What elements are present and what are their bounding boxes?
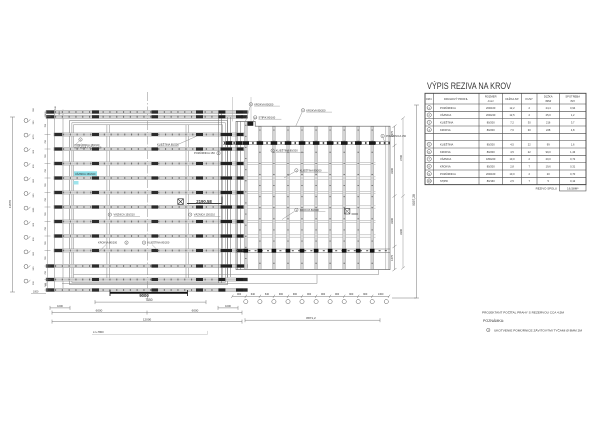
svg-text:1,2: 1,2 [571, 113, 575, 117]
svg-text:900: 900 [335, 293, 340, 296]
svg-text:1000: 1000 [33, 290, 39, 293]
svg-text:3300: 3300 [390, 218, 394, 224]
svg-text:4,8: 4,8 [571, 128, 575, 132]
svg-text:8871,2: 8871,2 [306, 316, 316, 320]
svg-text:4: 4 [126, 243, 127, 245]
svg-text:VÄZNICA 150/100: VÄZNICA 150/100 [75, 173, 96, 176]
svg-text:900: 900 [279, 293, 284, 296]
svg-text:6: 6 [296, 210, 297, 212]
svg-text:180/220: 180/220 [486, 157, 496, 161]
svg-text:25,0: 25,0 [546, 113, 552, 117]
svg-text:12,5: 12,5 [509, 113, 515, 117]
svg-text:1000: 1000 [225, 304, 231, 308]
svg-text:1070: 1070 [33, 134, 35, 140]
svg-text:1,43: 1,43 [570, 150, 576, 154]
svg-text:6000: 6000 [96, 308, 103, 312]
svg-text:5: 5 [218, 153, 219, 155]
svg-text:KOTVENÁ TYČOU M16: KOTVENÁ TYČOU M16 [75, 147, 103, 150]
svg-text:900: 900 [293, 293, 298, 296]
svg-text:7150: 7150 [145, 298, 152, 302]
svg-text:200/160: 200/160 [486, 106, 496, 110]
svg-text:ROZMER: ROZMER [485, 95, 497, 99]
svg-text:9: 9 [382, 136, 383, 138]
svg-text:KROKVA: KROKVA [440, 164, 451, 168]
svg-text:6000: 6000 [192, 308, 199, 312]
svg-text:20,0: 20,0 [546, 157, 552, 161]
svg-text:REZIVO SPOLU: REZIVO SPOLU [536, 186, 557, 190]
svg-text:80/200: 80/200 [487, 142, 495, 146]
svg-text:1: 1 [488, 330, 489, 332]
svg-text:KUSY: KUSY [526, 97, 534, 101]
svg-text:STļPIK: STļPIK [440, 179, 448, 183]
svg-text:VÄZNICA: VÄZNICA [440, 157, 452, 161]
svg-text:KROKVA 80/200: KROKVA 80/200 [300, 208, 320, 212]
svg-text:/MM/: /MM/ [545, 99, 551, 103]
svg-text:5: 5 [80, 139, 81, 141]
svg-text:1100: 1100 [33, 207, 35, 212]
svg-text:640: 640 [265, 293, 270, 296]
svg-text:80/200: 80/200 [487, 128, 495, 132]
svg-text:1,6: 1,6 [571, 142, 575, 146]
svg-text:VÄZNICA 150/210: VÄZNICA 150/210 [114, 213, 136, 217]
svg-text:900: 900 [321, 293, 326, 296]
svg-text:2,8: 2,8 [510, 164, 514, 168]
svg-text:228: 228 [546, 128, 551, 132]
svg-text:12,2: 12,2 [509, 106, 515, 110]
svg-text:0,72: 0,72 [570, 157, 576, 161]
svg-text:216: 216 [546, 120, 551, 124]
svg-text:900: 900 [349, 293, 354, 296]
svg-text:3300: 3300 [390, 168, 394, 174]
svg-text:1000: 1000 [57, 304, 63, 308]
svg-text:3: 3 [143, 243, 144, 245]
svg-text:4,5: 4,5 [510, 150, 514, 154]
svg-text:DRUHOVÝ PROFIL: DRUHOVÝ PROFIL [444, 97, 468, 101]
svg-text:10,0: 10,0 [509, 172, 515, 176]
svg-text:6: 6 [250, 104, 251, 106]
svg-text:80/200: 80/200 [487, 120, 495, 124]
svg-text:10: 10 [254, 117, 256, 119]
svg-text:VÄZNICA 150/210: VÄZNICA 150/210 [194, 213, 216, 217]
svg-text:3700: 3700 [399, 155, 403, 161]
svg-text:1475: 1475 [390, 131, 394, 137]
svg-text:SPOTREBA: SPOTREBA [565, 95, 580, 99]
svg-text:9097,28: 9097,28 [412, 194, 416, 206]
svg-text:7,6: 7,6 [510, 128, 514, 132]
svg-text:KROKVA 80/200: KROKVA 80/200 [306, 108, 326, 112]
svg-text:POZNÁMKA:: POZNÁMKA: [483, 319, 504, 323]
svg-text:KROKVA 80/200: KROKVA 80/200 [98, 240, 118, 244]
svg-text:7: 7 [109, 215, 110, 217]
svg-text:80/200: 80/200 [487, 164, 495, 168]
svg-text:L=+7800: L=+7800 [93, 330, 104, 334]
svg-text:1300: 1300 [378, 293, 384, 296]
svg-text:16,58M³: 16,58M³ [567, 187, 578, 191]
svg-text:0,94: 0,94 [570, 106, 576, 110]
svg-text:200/160: 200/160 [486, 172, 496, 176]
svg-text:10,0: 10,0 [509, 157, 515, 161]
svg-text:99,0: 99,0 [546, 150, 552, 154]
svg-text:0,70: 0,70 [570, 172, 576, 176]
svg-text:POMÚRNICA 150: POMÚRNICA 150 [386, 135, 407, 138]
svg-text:200/240: 200/240 [486, 113, 496, 117]
svg-text:KROKVA: KROKVA [440, 150, 451, 154]
svg-text:4,5: 4,5 [510, 142, 514, 146]
svg-text:0,31: 0,31 [570, 164, 576, 168]
svg-text:6: 6 [302, 110, 303, 112]
svg-text:UKOTVENIE POMÚRNICE ZÁVITOVÝMI: UKOTVENIE POMÚRNICE ZÁVITOVÝMI TYČAMI Ø … [494, 327, 583, 332]
svg-text:3,7: 3,7 [571, 120, 575, 124]
svg-text:12000: 12000 [143, 318, 152, 322]
svg-text:7: 7 [190, 215, 191, 217]
svg-text:2,5: 2,5 [510, 179, 514, 183]
svg-text:900: 900 [237, 293, 242, 296]
svg-text:0,12: 0,12 [570, 179, 576, 183]
svg-text:80/160: 80/160 [487, 179, 495, 183]
svg-text:VÄZNICA: VÄZNICA [440, 113, 452, 117]
svg-text:11870: 11870 [8, 200, 12, 208]
svg-text:900: 900 [363, 293, 368, 296]
svg-text:KROKVA: KROKVA [440, 128, 451, 132]
svg-text:900: 900 [307, 293, 312, 296]
svg-text:3: 3 [272, 151, 273, 153]
svg-text:5: 5 [296, 170, 297, 172]
svg-text:19,6: 19,6 [546, 164, 552, 168]
svg-text:1475: 1475 [390, 255, 394, 261]
svg-text:3300: 3300 [399, 229, 403, 235]
svg-text:2190.58: 2190.58 [196, 199, 212, 204]
svg-text:80/200: 80/200 [487, 150, 495, 154]
svg-text:/mm/: /mm/ [488, 99, 494, 103]
svg-text:/M³/: /M³/ [570, 99, 575, 103]
svg-text:7,2: 7,2 [510, 120, 514, 124]
svg-text:OZN.: OZN. [426, 97, 433, 101]
svg-text:640: 640 [251, 293, 256, 296]
svg-text:STļPIK 80/160: STļPIK 80/160 [259, 115, 276, 119]
svg-text:KROKVA 80/200: KROKVA 80/200 [254, 102, 274, 106]
svg-text:24,4: 24,4 [546, 106, 552, 110]
svg-text:VÝPIS REZIVA NA KROV: VÝPIS REZIVA NA KROV [427, 81, 511, 91]
